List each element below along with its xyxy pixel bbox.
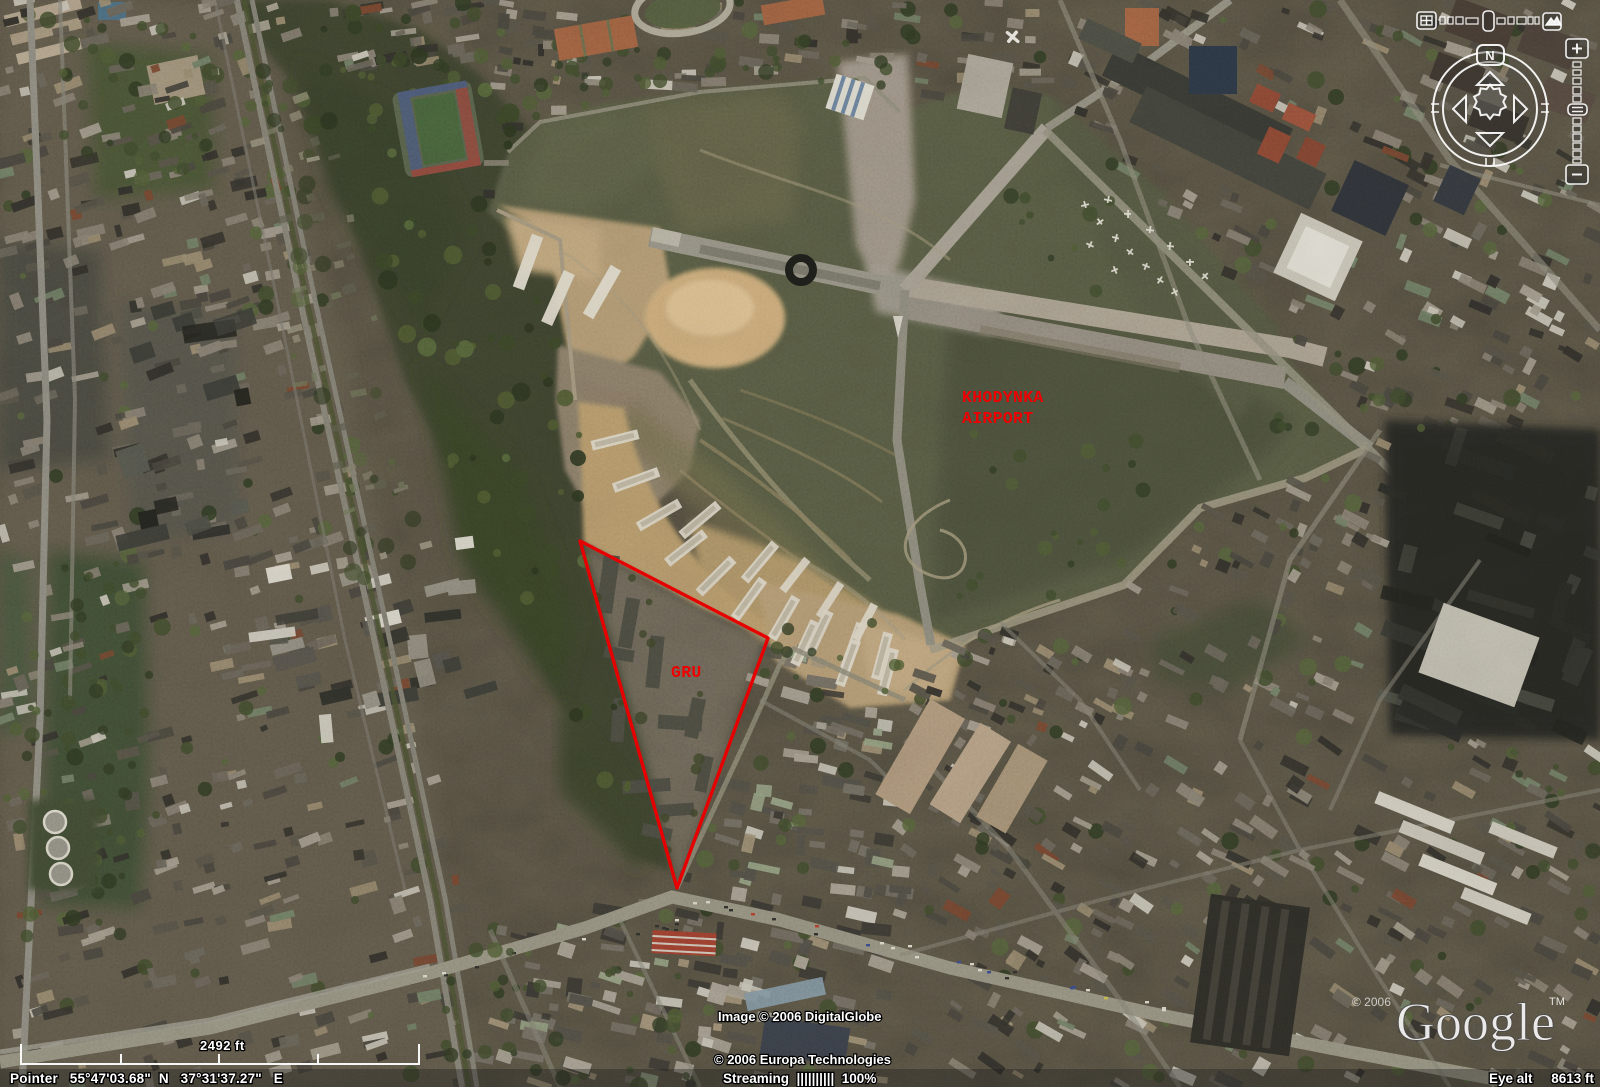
- svg-text:TM: TM: [1549, 996, 1565, 1008]
- svg-text:Image © 2006 DigitalGlobe: Image © 2006 DigitalGlobe: [718, 1009, 881, 1024]
- svg-text:N: N: [1485, 48, 1494, 63]
- svg-text:Google: Google: [1396, 992, 1555, 1052]
- svg-text:8613 ft: 8613 ft: [1551, 1071, 1594, 1086]
- svg-text:© 2006 Europa Technologies: © 2006 Europa Technologies: [714, 1052, 891, 1067]
- svg-text:AIRPORT: AIRPORT: [962, 409, 1033, 428]
- svg-text:Streaming |||||||||| 100%: Streaming |||||||||| 100%: [723, 1071, 876, 1086]
- svg-text:2492 ft: 2492 ft: [200, 1038, 245, 1053]
- svg-text:Eye alt: Eye alt: [1489, 1071, 1533, 1086]
- svg-text:KHODYNKA: KHODYNKA: [962, 388, 1044, 407]
- svg-text:Pointer 55°47'03.68" N 37: Pointer 55°47'03.68" N 37°31'37.27" E: [10, 1071, 283, 1086]
- svg-text:© 2006: © 2006: [1352, 995, 1391, 1009]
- svg-text:GRU: GRU: [671, 663, 702, 682]
